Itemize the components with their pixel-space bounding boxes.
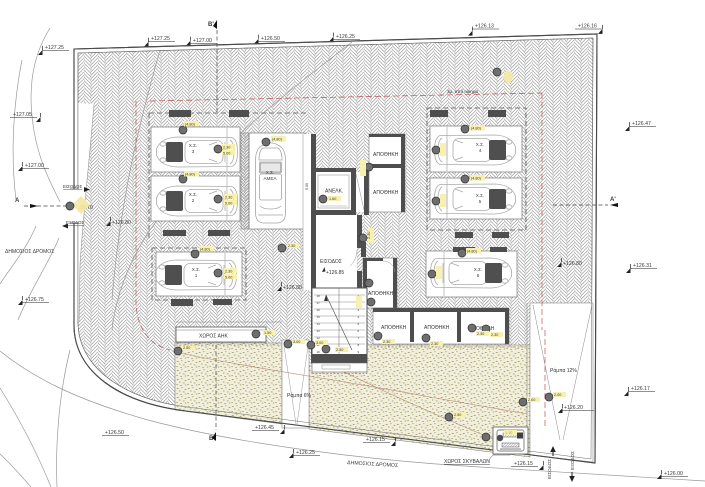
svg-text:ΑΝΕΛΚ.: ΑΝΕΛΚ. <box>325 189 343 195</box>
svg-text:(4.80): (4.80) <box>471 127 482 131</box>
svg-text:2.30: 2.30 <box>367 232 371 239</box>
svg-text:3μ. από οίκημα: 3μ. από οίκημα <box>447 88 478 94</box>
svg-text:Χ.Σ.: Χ.Σ. <box>474 267 482 272</box>
svg-text:ΕΞΟΔΟΣ: ΕΞΟΔΟΣ <box>570 451 575 470</box>
svg-text:13: 13 <box>317 329 321 333</box>
svg-text:+126.85: +126.85 <box>326 270 344 276</box>
svg-text:5: 5 <box>479 199 482 204</box>
svg-text:2.30: 2.30 <box>288 244 295 248</box>
svg-text:10: 10 <box>317 350 321 354</box>
svg-text:+126.47: +126.47 <box>632 121 651 127</box>
svg-text:Ράμπα 12%: Ράμπα 12% <box>550 367 577 374</box>
svg-text:12: 12 <box>317 336 321 340</box>
svg-text:+127.00: +127.00 <box>193 38 212 44</box>
svg-text:ΕΞΟΔΟΣ: ΕΞΟΔΟΣ <box>66 220 84 225</box>
svg-text:3.00: 3.00 <box>316 341 323 345</box>
svg-text:+126.13: +126.13 <box>475 24 494 30</box>
svg-text:ΑΠΟΘΗΚΗ: ΑΠΟΘΗΚΗ <box>424 325 450 331</box>
svg-text:+126.80: +126.80 <box>283 285 302 291</box>
svg-text:5.00: 5.00 <box>223 152 230 156</box>
svg-text:4: 4 <box>479 148 482 153</box>
svg-text:Β': Β' <box>208 22 214 28</box>
svg-text:ΑΠΟΘΗΚΗ: ΑΠΟΘΗΚΗ <box>373 190 399 196</box>
svg-text:2.00: 2.00 <box>554 393 561 397</box>
svg-text:5.00: 5.00 <box>305 183 309 190</box>
svg-text:+127.25: +127.25 <box>151 36 170 42</box>
svg-text:Χ.Σ.: Χ.Σ. <box>476 193 484 198</box>
svg-text:ΑΠΟΘΗΚΗ: ΑΠΟΘΗΚΗ <box>381 325 407 331</box>
svg-text:2.50: 2.50 <box>183 346 190 350</box>
svg-text:+126.00: +126.00 <box>664 471 683 477</box>
svg-text:1.50: 1.50 <box>264 331 271 335</box>
svg-text:+127.25: +127.25 <box>45 45 64 51</box>
svg-text:+126.45: +126.45 <box>255 425 274 431</box>
svg-text:(4.80): (4.80) <box>467 250 478 254</box>
svg-text:ΧΩΡΟΣ ΑΗΚ: ΧΩΡΟΣ ΑΗΚ <box>199 334 228 340</box>
svg-text:Χ.Σ.: Χ.Σ. <box>189 143 197 148</box>
svg-text:+126.25: +126.25 <box>296 450 315 456</box>
svg-text:2.30: 2.30 <box>383 340 390 344</box>
svg-text:2.30: 2.30 <box>225 270 232 274</box>
svg-text:ΕΙΣΟΔΟΣ: ΕΙΣΟΔΟΣ <box>63 184 82 189</box>
svg-text:1.10: 1.10 <box>505 431 512 435</box>
svg-text:+126.50: +126.50 <box>261 36 280 42</box>
svg-text:ΔΗΜΟΣΙΟΣ ΔΡΟΜΟΣ: ΔΗΜΟΣΙΟΣ ΔΡΟΜΟΣ <box>5 249 54 255</box>
svg-text:3.00: 3.00 <box>293 340 300 344</box>
svg-text:+127.05: +127.05 <box>13 112 32 118</box>
svg-text:+126.25: +126.25 <box>336 34 355 40</box>
svg-text:ΕΙΣΟΔΟΣ: ΕΙΣΟΔΟΣ <box>320 259 342 265</box>
svg-text:(4.80): (4.80) <box>200 248 211 252</box>
svg-text:2.30: 2.30 <box>431 342 438 346</box>
svg-text:Χ.Σ.: Χ.Σ. <box>192 267 200 272</box>
svg-text:18: 18 <box>317 294 321 298</box>
svg-text:+126.80: +126.80 <box>112 220 131 226</box>
svg-text:2.00: 2.00 <box>528 398 535 402</box>
svg-text:2.30: 2.30 <box>223 146 230 150</box>
svg-text:+126.31: +126.31 <box>633 263 652 269</box>
svg-text:6: 6 <box>477 273 480 278</box>
svg-text:Α: Α <box>15 198 20 204</box>
svg-text:14: 14 <box>317 322 321 326</box>
svg-text:ΑΠΟΘΗΚΗ: ΑΠΟΘΗΚΗ <box>373 152 399 158</box>
svg-text:ΑΠΟΘΗΚΗ: ΑΠΟΘΗΚΗ <box>368 291 394 297</box>
svg-text:Ράμπα 6%: Ράμπα 6% <box>287 392 312 399</box>
svg-text:5.00: 5.00 <box>225 202 232 206</box>
svg-text:+126.75: +126.75 <box>25 297 44 303</box>
svg-text:ΕΙΣΟΔΟΣ: ΕΙΣΟΔΟΣ <box>547 459 552 479</box>
svg-text:ΧΩΡΟΣ ΣΚΥΒΑΛΩΝ: ΧΩΡΟΣ ΣΚΥΒΑΛΩΝ <box>444 459 490 465</box>
svg-text:2.50: 2.50 <box>454 413 461 417</box>
svg-text:+126.15: +126.15 <box>514 461 533 467</box>
svg-text:1.60: 1.60 <box>329 197 336 201</box>
svg-text:+126.16: +126.16 <box>578 24 597 30</box>
svg-text:(4.80): (4.80) <box>185 123 196 127</box>
svg-text:+126.17: +126.17 <box>631 386 650 392</box>
svg-text:1: 1 <box>195 273 198 278</box>
svg-text:+126.50: +126.50 <box>105 430 124 436</box>
svg-text:(4.80): (4.80) <box>185 173 196 177</box>
svg-text:Χ.Σ.: Χ.Σ. <box>476 142 484 147</box>
svg-text:ΑΜΕΑ: ΑΜΕΑ <box>263 176 277 181</box>
svg-text:17: 17 <box>317 301 321 305</box>
svg-text:Χ.Σ.: Χ.Σ. <box>266 170 274 175</box>
svg-text:+126.15: +126.15 <box>366 437 385 443</box>
svg-text:2.30: 2.30 <box>477 332 484 336</box>
svg-text:16: 16 <box>317 308 321 312</box>
svg-text:(4.80): (4.80) <box>471 177 482 181</box>
svg-text:+126.20: +126.20 <box>564 405 583 411</box>
svg-text:3: 3 <box>192 149 195 154</box>
svg-text:2.50: 2.50 <box>336 348 343 352</box>
svg-text:(4.80): (4.80) <box>272 138 283 142</box>
svg-text:+126.80: +126.80 <box>563 261 582 267</box>
svg-text:2.30: 2.30 <box>225 196 232 200</box>
svg-text:2: 2 <box>192 198 195 203</box>
svg-text:15: 15 <box>317 315 321 319</box>
svg-text:+127.00: +127.00 <box>25 163 44 169</box>
svg-text:Α': Α' <box>610 197 616 203</box>
svg-text:Χ.Σ.: Χ.Σ. <box>189 192 197 197</box>
svg-text:5.00: 5.00 <box>225 276 232 280</box>
svg-text:2.30: 2.30 <box>491 333 498 337</box>
